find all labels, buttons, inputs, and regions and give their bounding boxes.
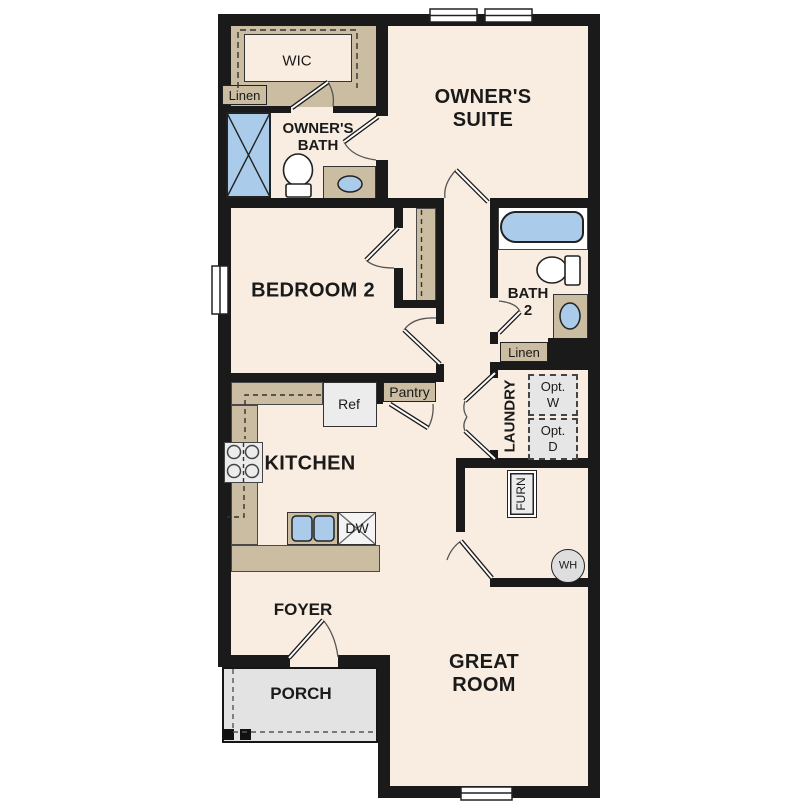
owners-bath-line2: BATH <box>282 137 353 154</box>
utility-door-arc <box>447 541 461 560</box>
porch-label: PORCH <box>270 684 331 704</box>
fixtures-layer <box>0 0 810 810</box>
furn-label: FURN <box>515 477 529 510</box>
bedroom2-label: BEDROOM 2 <box>251 280 375 303</box>
owners-bath-line1: OWNER'S <box>282 120 353 137</box>
door-arcs <box>323 82 520 657</box>
sink-owners-bath <box>338 176 362 192</box>
bedroom2-door-arc <box>366 260 394 268</box>
owners-suite-line1: OWNER'S <box>435 86 532 109</box>
dw-label: DW <box>345 520 368 536</box>
toilet-owners-bath <box>284 154 313 197</box>
kitchen-sink-basins <box>292 516 334 541</box>
floor-plan: Linen Linen Pantry Opt. W Opt. D <box>0 0 810 810</box>
door-leaves <box>289 82 520 658</box>
hall-kitchen-door-arc <box>404 318 436 330</box>
wic-door-arc <box>328 82 333 106</box>
bath2-label: BATH 2 <box>508 285 549 320</box>
wh-label: WH <box>559 560 577 573</box>
bath2-line1: BATH <box>508 285 549 302</box>
toilet-bath2 <box>537 256 580 285</box>
shower <box>227 113 270 197</box>
owners-suite-line2: SUITE <box>435 109 532 132</box>
laundry-door-top-arc <box>464 401 467 417</box>
great-room-label: GREAT ROOM <box>449 651 519 697</box>
great-room-line1: GREAT <box>449 651 519 674</box>
bath2-line2: 2 <box>508 302 549 319</box>
kitchen-label: KITCHEN <box>265 453 356 476</box>
suite-door-arc <box>445 170 456 198</box>
wic-label: WIC <box>282 52 311 69</box>
bathtub <box>501 212 583 242</box>
great-room-line2: ROOM <box>449 674 519 697</box>
pantry-door-arc <box>428 404 433 428</box>
ref-label: Ref <box>338 396 360 412</box>
owners-bath-label: OWNER'S BATH <box>282 120 353 155</box>
front-door-arc <box>323 620 338 657</box>
foyer-label: FOYER <box>274 600 333 620</box>
sink-bath2 <box>560 303 580 329</box>
laundry-door-bottom-arc <box>464 417 467 431</box>
owners-suite-label: OWNER'S SUITE <box>435 86 532 132</box>
laundry-label: LAUNDRY <box>501 380 518 453</box>
